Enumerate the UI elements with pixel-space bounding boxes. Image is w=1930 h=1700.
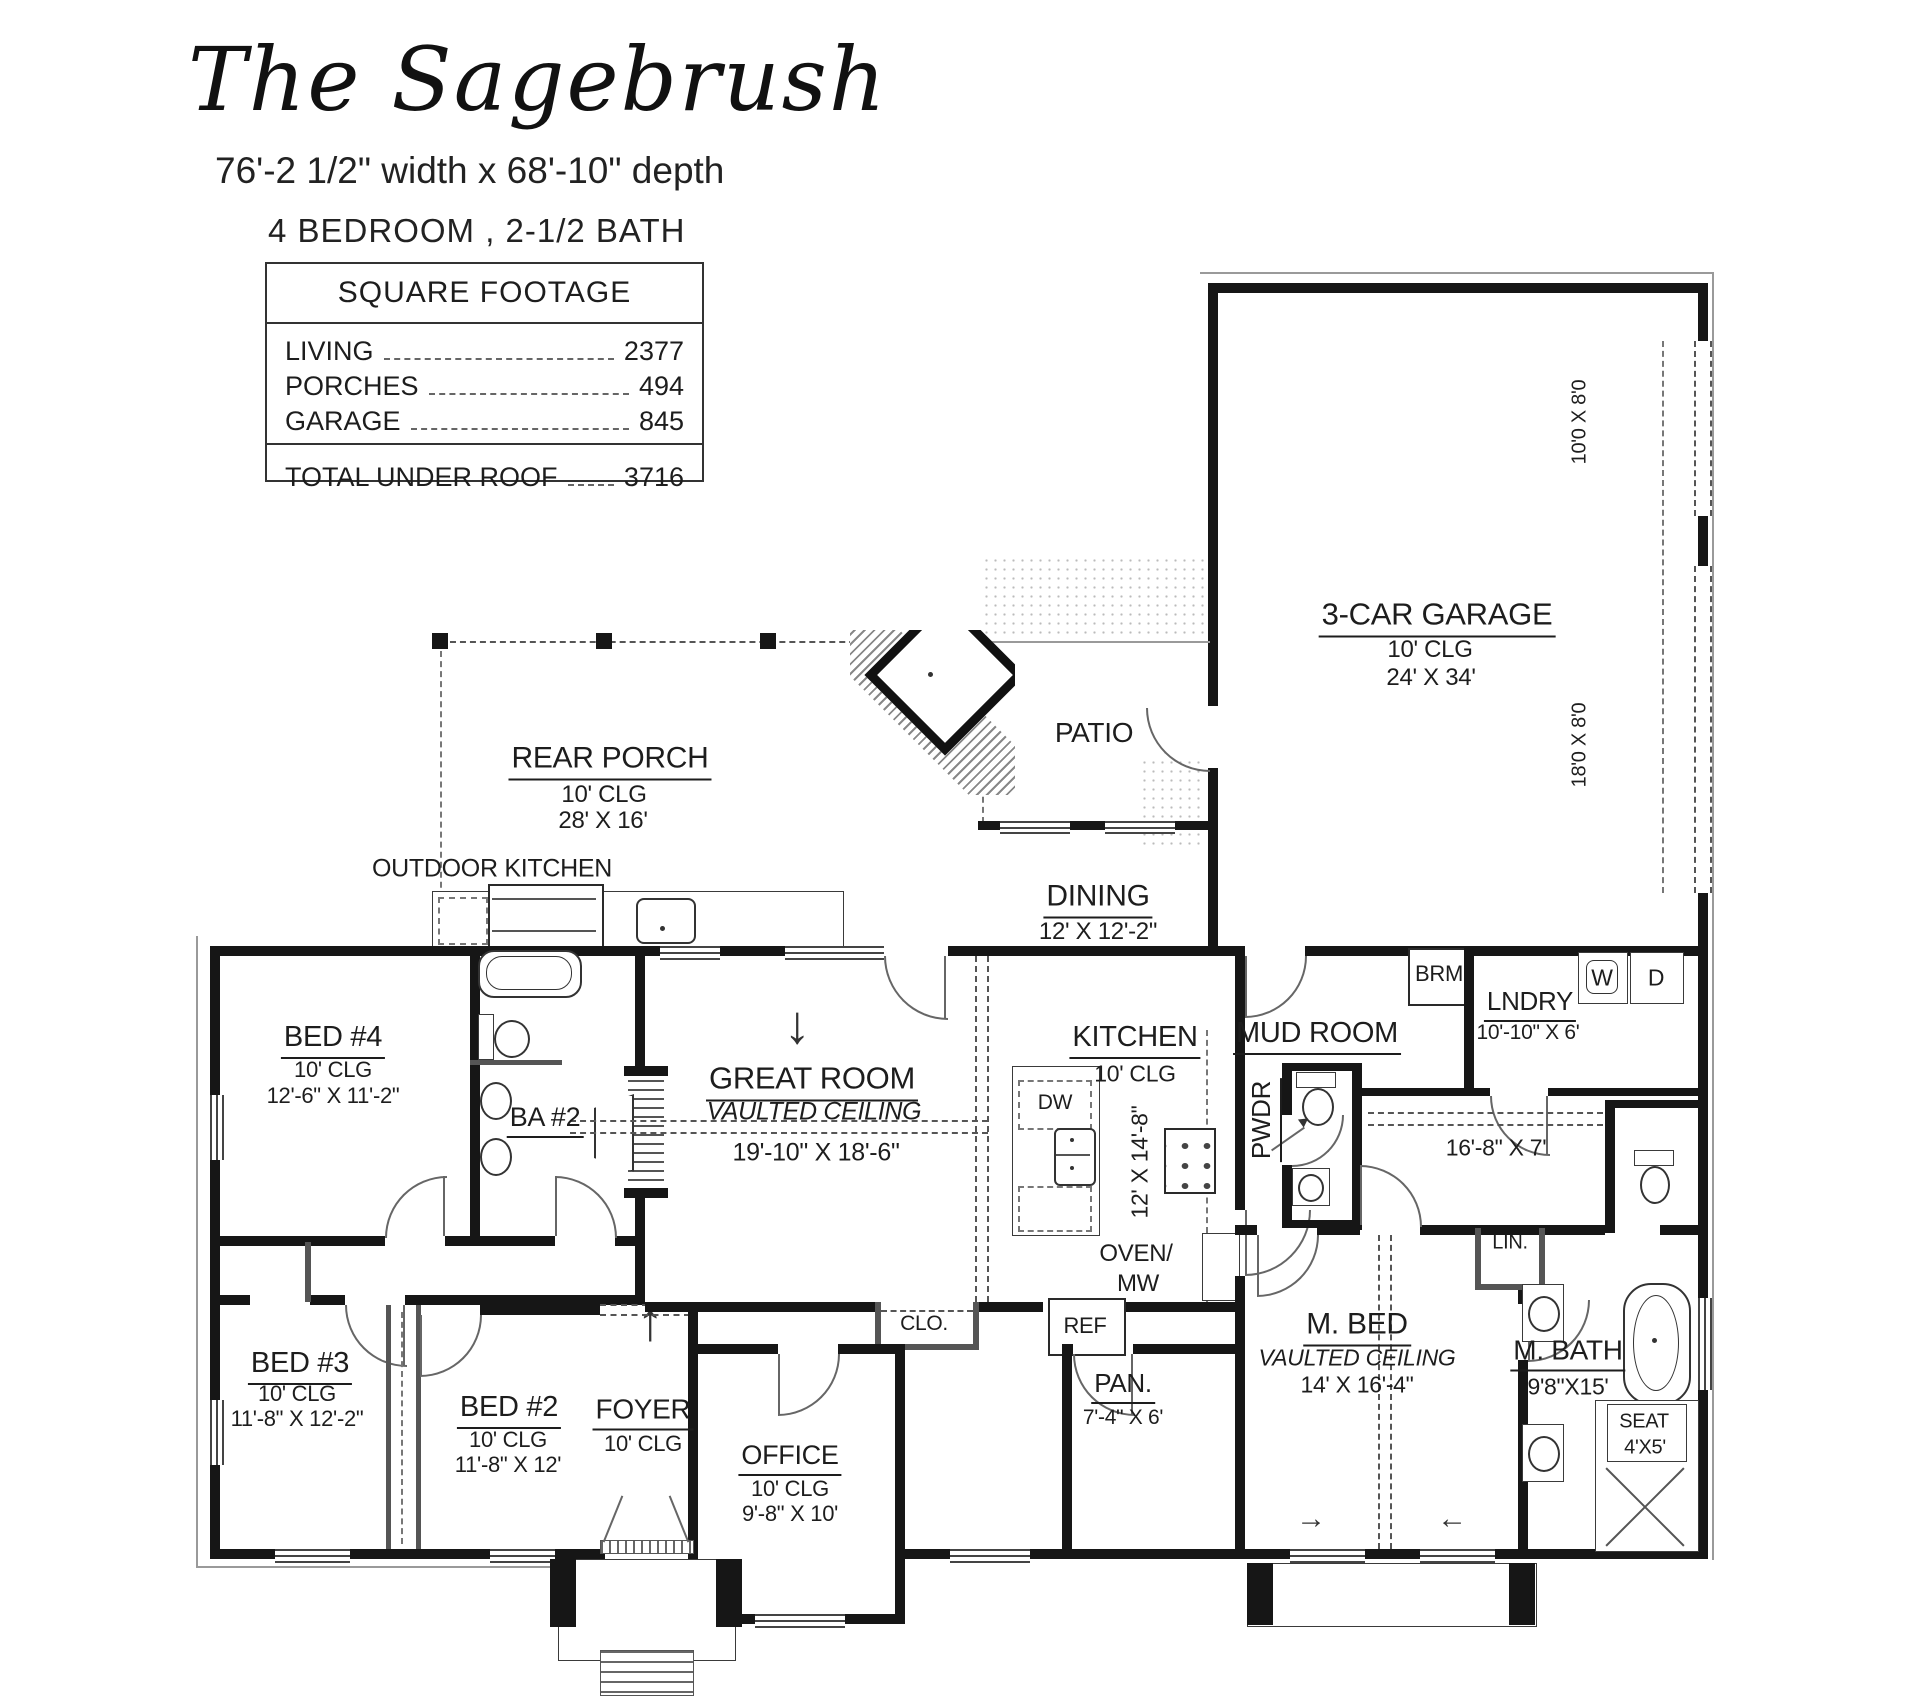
overhang-line [1200, 272, 1712, 274]
master-bath-dims: 9'8"X15' [1527, 1374, 1608, 1401]
kitchen-dims: 12' X 14'-8" [1127, 1105, 1154, 1218]
vault-arrow-down: ↓ [784, 994, 811, 1056]
wall [688, 1344, 778, 1354]
room-label-master-bed: M. BED [1303, 1308, 1411, 1347]
porch-column [1509, 1563, 1535, 1625]
leader-line [384, 358, 614, 360]
window [785, 946, 884, 960]
bed4-dims: 12'-6" X 11'-2" [267, 1083, 400, 1109]
master-bed-dims: 14' X 16'-4" [1300, 1372, 1413, 1399]
wall [1175, 821, 1208, 830]
bed4-ceiling: 10' CLG [294, 1057, 372, 1083]
microwave-label: MW [1117, 1270, 1159, 1298]
wall [210, 1549, 275, 1559]
stipple-texture [982, 556, 1204, 640]
garage-door-large-dims: 18'0 X 8'0 [1569, 703, 1592, 788]
closet-wall [1475, 1228, 1481, 1290]
wall [1464, 946, 1474, 1096]
great-room-ceiling: VAULTED CEILING [707, 1098, 922, 1127]
room-label-garage: 3-CAR GARAGE [1319, 597, 1556, 638]
room-label-bed3: BED #3 [248, 1347, 352, 1385]
wall [1240, 1549, 1290, 1559]
room-label-pantry: PAN. [1091, 1368, 1155, 1404]
bed-bath-summary: 4 BEDROOM , 2-1/2 BATH [268, 212, 685, 250]
room-label-laundry: LNDRY [1484, 986, 1576, 1022]
door-leaf [1245, 1210, 1247, 1274]
door-arc [420, 1315, 482, 1377]
wall [720, 946, 785, 956]
master-bed-ceiling: VAULTED CEILING [1258, 1345, 1455, 1372]
sink [1528, 1436, 1560, 1472]
sink-drain [660, 926, 665, 931]
leader-line [568, 484, 614, 486]
wall [1317, 1225, 1360, 1235]
wall [1282, 1165, 1292, 1220]
pantry-dims: 7'-4" X 6' [1083, 1406, 1163, 1430]
door-arc [778, 1354, 840, 1416]
sink-divider [1056, 1154, 1090, 1156]
bathtub-inner [486, 956, 572, 990]
total-label: TOTAL UNDER ROOF [285, 462, 558, 493]
broom-closet-label: BRM [1415, 961, 1463, 987]
bed2-ceiling: 10' CLG [469, 1427, 547, 1453]
room-label-mud-room: MUD ROOM [1233, 1017, 1401, 1055]
wall [210, 946, 220, 1095]
door-leaf [420, 1315, 422, 1375]
room-label-rear-porch: REAR PORCH [508, 742, 711, 781]
wall [210, 1295, 250, 1305]
laundry-dims: 10'-10" X 6' [1477, 1021, 1580, 1045]
wall [1235, 1225, 1257, 1235]
square-footage-table: SQUARE FOOTAGE LIVING2377 PORCHES494 GAR… [265, 262, 704, 482]
outdoor-cabinet [438, 897, 488, 945]
wall [615, 1236, 645, 1246]
wall [1362, 1088, 1464, 1096]
toilet-tank [1634, 1150, 1674, 1166]
linen-label: LIN. [1492, 1232, 1527, 1255]
wall [1070, 821, 1105, 830]
wall [1122, 1302, 1245, 1312]
sink-drain [1070, 1138, 1074, 1142]
toilet-tank [478, 1014, 494, 1060]
wall [845, 1614, 900, 1624]
outdoor-fireplace [850, 630, 1015, 795]
porch-column [550, 1559, 576, 1627]
shower-seat-label: SEAT [1619, 1411, 1669, 1434]
row-label: PORCHES [285, 371, 419, 402]
bed3-ceiling: 10' CLG [258, 1381, 336, 1407]
fireplace-cap [624, 1188, 668, 1198]
patio-edge [982, 641, 1210, 643]
door-leaf [555, 1176, 557, 1236]
garage-door-small-dims: 10'0 X 8'0 [1569, 380, 1592, 465]
outdoor-sink [636, 898, 696, 944]
great-room-dims: 19'-10" X 18'-6" [732, 1139, 899, 1168]
kitchen-sink [1054, 1128, 1096, 1186]
wall [1605, 1100, 1615, 1233]
kitchen-ceiling: 10' CLG [1094, 1061, 1176, 1088]
master-closet-dims: 16'-8" X 7' [1446, 1135, 1547, 1162]
window [660, 946, 720, 960]
wall [1235, 946, 1245, 1210]
wall [635, 1190, 645, 1305]
row-label: GARAGE [285, 406, 401, 437]
grill [488, 884, 604, 954]
fireplace-cap [624, 1066, 668, 1076]
window [1420, 1549, 1495, 1563]
porch-column [1247, 1563, 1273, 1625]
room-label-bath2: BA #2 [507, 1102, 584, 1138]
sink [1298, 1174, 1324, 1202]
window [1105, 821, 1175, 834]
wall [973, 1302, 1043, 1312]
dining-dims: 12' X 12'-2" [1039, 918, 1157, 946]
wall [1660, 1225, 1708, 1235]
wall [645, 1302, 878, 1312]
window [210, 1400, 224, 1465]
room-label-bed4: BED #4 [281, 1021, 385, 1059]
room-label-bed2: BED #2 [457, 1391, 561, 1429]
wall [210, 1465, 220, 1559]
stipple-texture [1140, 758, 1206, 848]
bathtub-inner [1633, 1295, 1679, 1391]
overhang-line [196, 936, 198, 1568]
row-value: 494 [639, 371, 684, 402]
wall [895, 1344, 905, 1624]
wall [480, 1305, 600, 1315]
wall [1208, 768, 1218, 956]
toilet-bowl [1640, 1166, 1670, 1204]
door-arc [1360, 1165, 1422, 1227]
floor-plan: The Sagebrush 76'-2 1/2" width x 68'-10"… [0, 0, 1930, 1700]
table-row: LIVING2377 [285, 332, 684, 367]
closet-wall [1539, 1228, 1545, 1290]
door-arc [385, 1176, 447, 1238]
square-footage-rows: LIVING2377 PORCHES494 GARAGE845 [267, 324, 702, 437]
shower-dims: 4'X5' [1624, 1437, 1666, 1460]
room-label-foyer: FOYER [593, 1394, 694, 1431]
wall [1698, 1390, 1708, 1559]
window [1290, 1549, 1365, 1563]
wall [210, 946, 660, 956]
toilet-tank [1296, 1072, 1336, 1088]
wall [470, 1060, 562, 1065]
wall [1698, 283, 1708, 341]
wall [1282, 1063, 1362, 1071]
wall [1235, 1276, 1245, 1559]
garage-ceiling: 10' CLG [1387, 636, 1472, 664]
wall [1133, 1344, 1245, 1354]
window [210, 1095, 224, 1160]
window [1000, 821, 1070, 834]
window [490, 1549, 555, 1563]
toilet-bowl [494, 1020, 530, 1058]
entry-threshold [600, 1540, 694, 1554]
washer-label: W [1591, 965, 1612, 992]
dishwasher-label: DW [1038, 1091, 1072, 1115]
door-arc [884, 956, 948, 1020]
porch-column [760, 633, 776, 649]
garage-setback-line [1662, 341, 1666, 893]
entry-steps [600, 1650, 694, 1696]
wall [1548, 1088, 1708, 1096]
garage-door-small [1694, 341, 1712, 516]
office-ceiling: 10' CLG [751, 1476, 829, 1502]
garage-dims: 24' X 34' [1386, 664, 1475, 692]
sink [1528, 1296, 1560, 1332]
plan-dimensions: 76'-2 1/2" width x 68'-10" depth [215, 150, 724, 192]
room-label-pwdr: PWDR [1246, 1078, 1282, 1162]
plan-title: The Sagebrush [188, 28, 888, 131]
vault-arrow-left: ← [1437, 1502, 1467, 1536]
window [950, 1549, 1030, 1563]
fireplace-damper-dot [928, 672, 933, 677]
wall [470, 946, 480, 1246]
entry-porch [558, 1559, 736, 1661]
door-leaf [778, 1354, 780, 1414]
vault-arrow-right: → [1296, 1502, 1326, 1536]
closet-dash [401, 1312, 405, 1544]
garage-door-large [1694, 566, 1712, 893]
square-footage-title: SQUARE FOOTAGE [267, 264, 702, 324]
wall [948, 946, 1210, 956]
sink-drain [1070, 1166, 1074, 1170]
wall [1365, 1549, 1420, 1559]
door-leaf [1257, 1235, 1259, 1295]
door-leaf [1360, 1165, 1362, 1225]
dryer-label: D [1648, 965, 1664, 992]
total-value: 3716 [624, 462, 684, 493]
office-dims: 9'-8" X 10' [742, 1501, 838, 1527]
wall [978, 821, 1000, 830]
door-leaf [1245, 956, 1247, 1016]
room-label-outdoor-kitchen: OUTDOOR KITCHEN [372, 855, 612, 884]
room-label-kitchen: KITCHEN [1069, 1021, 1200, 1059]
wall [210, 1160, 220, 1400]
wall [310, 1295, 345, 1305]
table-row: PORCHES494 [285, 367, 684, 402]
entry-door-leaf [669, 1495, 690, 1542]
closet-rod-dash [1368, 1112, 1603, 1126]
grill-line [492, 898, 596, 900]
overhang-line [196, 1566, 558, 1568]
rear-porch-ceiling: 10' CLG [561, 781, 646, 809]
closet-wall [386, 1305, 391, 1549]
window [755, 1614, 845, 1628]
room-label-patio: PATIO [1055, 717, 1133, 749]
room-label-dining: DINING [1043, 880, 1152, 919]
foyer-ceiling: 10' CLG [604, 1431, 682, 1457]
wall [838, 1344, 900, 1354]
closet-divider [305, 1242, 311, 1302]
vault-arrow-up: ↑ [637, 1291, 664, 1353]
wall [1605, 1100, 1708, 1108]
row-value: 2377 [624, 336, 684, 367]
entry-door-leaf [603, 1495, 624, 1542]
cabinet-box [1018, 1186, 1092, 1232]
door-arc [345, 1305, 407, 1367]
wall [1282, 1063, 1292, 1115]
room-label-office: OFFICE [738, 1440, 841, 1476]
bed2-dims: 11'-8" X 12' [455, 1452, 561, 1478]
leader-line [411, 428, 629, 430]
wall [445, 1236, 555, 1246]
closet-label: CLO. [900, 1312, 948, 1336]
door-arc [1245, 956, 1307, 1018]
porch-column [432, 633, 448, 649]
wall [1698, 956, 1708, 1298]
table-row: GARAGE845 [285, 402, 684, 437]
tub-drain [1652, 1338, 1657, 1343]
wall [1062, 1344, 1072, 1559]
overhang-line [1712, 272, 1714, 968]
row-value: 845 [639, 406, 684, 437]
closet-wall [973, 1302, 979, 1350]
wall [1698, 516, 1708, 566]
wall [1464, 1088, 1490, 1096]
door-arc [555, 1176, 617, 1238]
leader-line [429, 393, 629, 395]
refrigerator-label: REF [1063, 1313, 1106, 1339]
door-leaf [443, 1176, 445, 1236]
room-label-great-room: GREAT ROOM [706, 1061, 918, 1102]
wall [210, 1236, 385, 1246]
door-leaf [944, 956, 946, 1018]
window [275, 1549, 350, 1563]
grill-line [492, 930, 596, 932]
door-arc [1257, 1235, 1319, 1297]
wall [635, 946, 645, 1076]
porch-column [716, 1559, 742, 1627]
room-label-master-bath: M. BATH [1510, 1335, 1625, 1372]
table-total-row: TOTAL UNDER ROOF3716 [267, 443, 702, 493]
range-cooktop [1164, 1128, 1216, 1194]
overhang-line [1712, 968, 1714, 1560]
window [1698, 1298, 1712, 1390]
porch-outline [1247, 1563, 1537, 1627]
bed3-dims: 11'-8" X 12'-2" [231, 1406, 364, 1432]
sink [480, 1138, 512, 1176]
wall [350, 1549, 490, 1559]
rear-porch-dims: 28' X 16' [558, 807, 647, 835]
row-label: LIVING [285, 336, 374, 367]
wall [1208, 283, 1708, 293]
oven-label: OVEN/ [1099, 1240, 1172, 1268]
porch-column [596, 633, 612, 649]
